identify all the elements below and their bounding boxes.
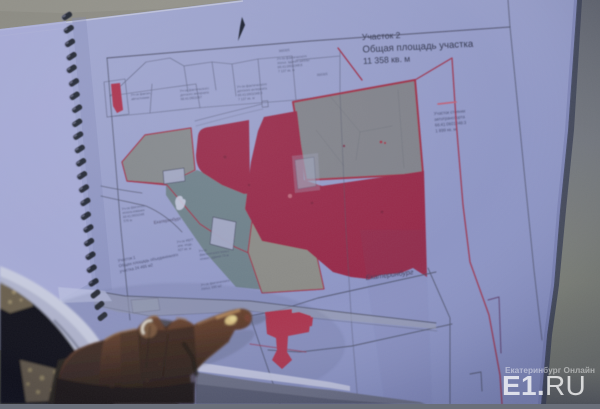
svg-text:E1.RU: E1.RU [502, 370, 586, 401]
